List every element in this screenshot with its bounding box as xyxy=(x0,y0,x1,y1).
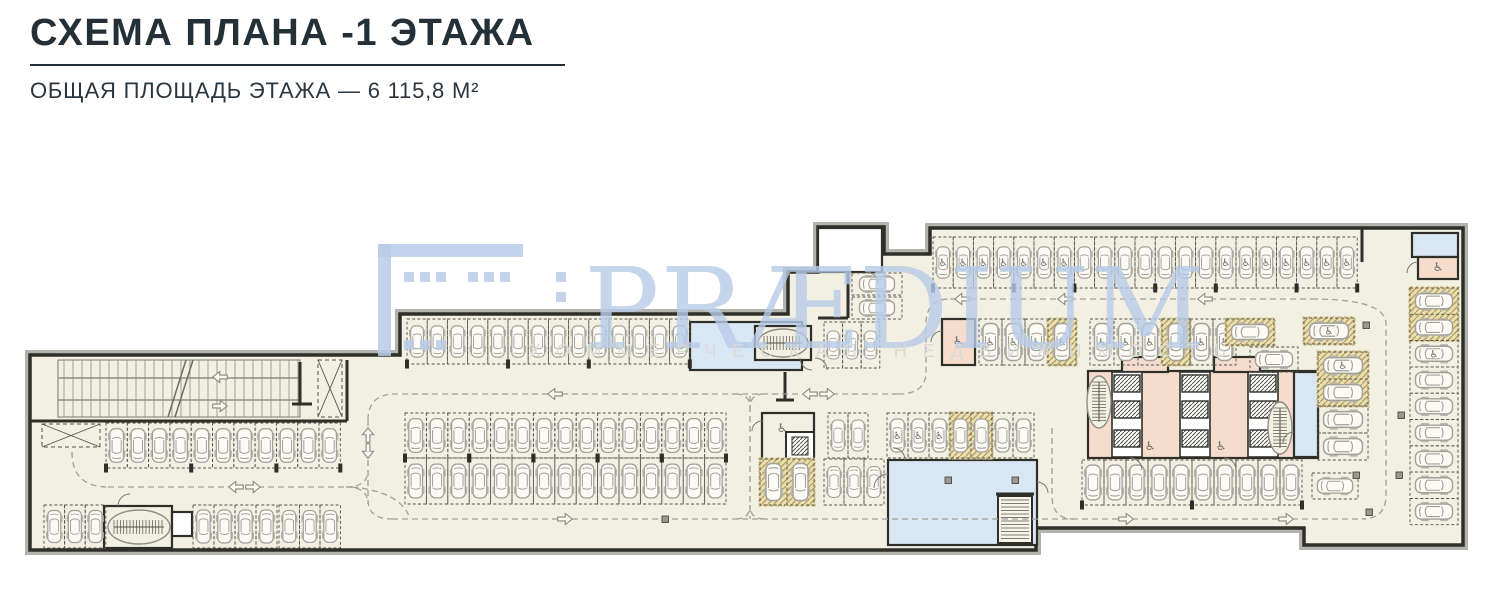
accessible-icon: ♿ xyxy=(1145,439,1156,453)
car-icon xyxy=(1256,350,1293,369)
column-stub xyxy=(274,464,278,473)
elevator-shaft xyxy=(1250,375,1276,392)
car-icon xyxy=(578,419,595,453)
car-icon xyxy=(407,419,424,453)
column xyxy=(1398,412,1405,419)
parking-row xyxy=(279,505,341,548)
car-icon xyxy=(281,511,298,543)
column-stub xyxy=(1295,284,1299,293)
car-icon xyxy=(1324,436,1363,456)
car-icon xyxy=(994,419,1011,452)
title-underline xyxy=(30,64,565,66)
car-icon xyxy=(470,326,486,357)
car-icon xyxy=(1416,292,1453,311)
column-stub xyxy=(1300,501,1304,510)
car-icon xyxy=(1324,382,1363,402)
column-stub xyxy=(1214,284,1218,293)
car-icon xyxy=(321,429,338,463)
car-icon xyxy=(450,464,467,498)
car-icon xyxy=(449,326,465,357)
car-icon xyxy=(846,467,862,498)
car-icon xyxy=(764,464,783,501)
car-icon xyxy=(195,510,212,543)
car-icon xyxy=(557,419,574,453)
car-icon xyxy=(278,429,295,463)
accessible-icon: ♿ xyxy=(1433,260,1444,274)
column-stub xyxy=(1190,501,1194,510)
column-stub xyxy=(467,454,471,463)
column-stub xyxy=(405,360,409,369)
car-icon xyxy=(490,326,506,357)
accessible-icon: ♿ xyxy=(1242,258,1251,269)
column-stub xyxy=(338,464,342,473)
parking-row xyxy=(193,505,277,548)
car-icon xyxy=(1015,419,1032,452)
car-icon xyxy=(1084,465,1102,500)
elevator-shaft xyxy=(1114,430,1140,447)
column-stub xyxy=(104,464,108,473)
car-icon xyxy=(1324,409,1363,429)
car-icon xyxy=(151,429,168,463)
accessible-icon: ♿ xyxy=(1221,258,1230,269)
elevator-core xyxy=(1112,372,1278,457)
page-title: СХЕМА ПЛАНА -1 ЭТАЖА xyxy=(30,12,565,55)
car-icon xyxy=(1416,502,1453,521)
parking-row xyxy=(759,458,816,507)
car-icon xyxy=(685,464,702,498)
car-icon xyxy=(428,419,445,453)
accessible-icon: ♿ xyxy=(1343,258,1352,269)
accessible-icon: ♿ xyxy=(1216,439,1227,453)
column-stub xyxy=(724,454,728,463)
car-icon xyxy=(301,511,318,543)
accessible-icon: ♿ xyxy=(1322,258,1331,269)
column-stub xyxy=(189,464,193,473)
car-icon xyxy=(236,429,253,463)
car-icon xyxy=(1416,423,1453,442)
car-icon xyxy=(1416,318,1453,337)
car-icon xyxy=(1216,465,1234,500)
accessible-icon: ♿ xyxy=(777,421,788,435)
car-icon xyxy=(535,419,552,453)
parking-row xyxy=(44,505,106,548)
car-icon xyxy=(664,419,681,453)
car-icon xyxy=(1150,465,1168,500)
elevator-shaft xyxy=(1182,375,1208,392)
car-icon xyxy=(108,429,125,463)
car-icon xyxy=(600,464,617,498)
accessible-icon: ♿ xyxy=(914,431,923,442)
car-icon xyxy=(621,464,638,498)
car-icon xyxy=(578,464,595,498)
car-icon xyxy=(850,420,866,451)
car-icon xyxy=(1282,465,1300,500)
car-icon xyxy=(1260,465,1278,500)
car-icon xyxy=(1416,449,1453,468)
header: СХЕМА ПЛАНА -1 ЭТАЖА ОБЩАЯ ПЛОЩАДЬ ЭТАЖА… xyxy=(30,12,565,104)
car-icon xyxy=(129,429,146,463)
car-icon xyxy=(407,464,424,498)
column-stub xyxy=(1080,501,1084,510)
car-icon xyxy=(510,326,526,357)
car-icon xyxy=(826,467,842,498)
elevator-shaft xyxy=(1182,401,1208,418)
accessible-icon: ♿ xyxy=(1302,258,1311,269)
accessible-icon: ♿ xyxy=(935,431,944,442)
column xyxy=(1363,322,1370,329)
parking-row: ♿ xyxy=(1409,287,1460,525)
elevator-shaft xyxy=(1114,375,1140,392)
car-icon xyxy=(1194,465,1212,500)
car-icon xyxy=(258,510,275,543)
column xyxy=(945,477,952,484)
column-stub xyxy=(531,454,535,463)
car-icon xyxy=(237,510,254,543)
car-icon xyxy=(557,464,574,498)
car-icon xyxy=(642,464,659,498)
column xyxy=(1366,509,1373,516)
car-icon xyxy=(952,419,969,452)
page: ♿♿♿♿♿♿♿♿♿♿♿♿♿♿♿♿♿♿♿♿♿♿♿♿♿♿♿♿♿♿♿♿♿♿ PRÆDI… xyxy=(0,0,1490,607)
car-icon xyxy=(514,419,531,453)
room xyxy=(172,512,192,536)
column-stub xyxy=(1355,284,1359,293)
accessible-icon: ♿ xyxy=(893,431,902,442)
car-icon xyxy=(257,429,274,463)
small-elevator xyxy=(786,432,814,460)
column-stub xyxy=(596,454,600,463)
car-icon xyxy=(1416,370,1453,389)
accessible-icon: ♿ xyxy=(1339,361,1348,372)
column xyxy=(662,516,669,523)
car-icon xyxy=(664,464,681,498)
car-icon xyxy=(1238,465,1256,500)
accessible-icon: ♿ xyxy=(1325,327,1334,338)
car-icon xyxy=(707,464,724,498)
car-icon xyxy=(707,419,724,453)
car-icon xyxy=(642,419,659,453)
car-icon xyxy=(866,467,882,498)
elevator-shaft xyxy=(1114,401,1140,418)
accessible-icon: ♿ xyxy=(1430,349,1439,360)
car-icon xyxy=(830,420,846,451)
column-stub xyxy=(660,454,664,463)
room xyxy=(1294,372,1318,457)
car-icon xyxy=(535,464,552,498)
column xyxy=(1396,472,1403,479)
car-icon xyxy=(214,429,231,463)
column-stub xyxy=(403,454,407,463)
car-icon xyxy=(1128,465,1146,500)
car-icon xyxy=(973,419,990,452)
car-icon xyxy=(450,419,467,453)
watermark-tagline: КОММЕРЧЕСКАЯ НЕДВИЖИМОСТЬ xyxy=(530,341,1242,361)
car-icon xyxy=(216,510,233,543)
car-icon xyxy=(1106,465,1124,500)
car-icon xyxy=(685,419,702,453)
car-icon xyxy=(87,510,104,542)
parking-row: ♿ xyxy=(1317,351,1370,408)
column-stub xyxy=(506,360,510,369)
parking-row: ♿ xyxy=(1303,317,1356,346)
car-icon xyxy=(493,464,510,498)
elevator-shaft xyxy=(1182,430,1208,447)
accessible-icon: ♿ xyxy=(1262,258,1271,269)
car-icon xyxy=(428,464,445,498)
column xyxy=(1353,472,1360,479)
car-icon xyxy=(514,464,531,498)
car-icon xyxy=(791,464,810,501)
car-icon xyxy=(600,419,617,453)
car-icon xyxy=(1416,397,1453,416)
accessible-icon: ♿ xyxy=(1282,258,1291,269)
car-icon xyxy=(67,510,84,542)
car-icon xyxy=(46,510,63,542)
car-icon xyxy=(1232,322,1269,341)
column xyxy=(1012,477,1019,484)
car-icon xyxy=(1416,476,1453,495)
car-icon xyxy=(1172,465,1190,500)
car-icon xyxy=(471,464,488,498)
car-icon xyxy=(1317,477,1352,495)
car-icon xyxy=(493,419,510,453)
room xyxy=(1412,233,1458,257)
car-icon xyxy=(322,511,339,543)
floor-area-subtitle: ОБЩАЯ ПЛОЩАДЬ ЭТАЖА — 6 115,8 М² xyxy=(30,78,565,104)
car-icon xyxy=(193,429,210,463)
car-icon xyxy=(172,429,189,463)
car-icon xyxy=(621,419,638,453)
car-icon xyxy=(471,419,488,453)
car-icon xyxy=(300,429,317,463)
